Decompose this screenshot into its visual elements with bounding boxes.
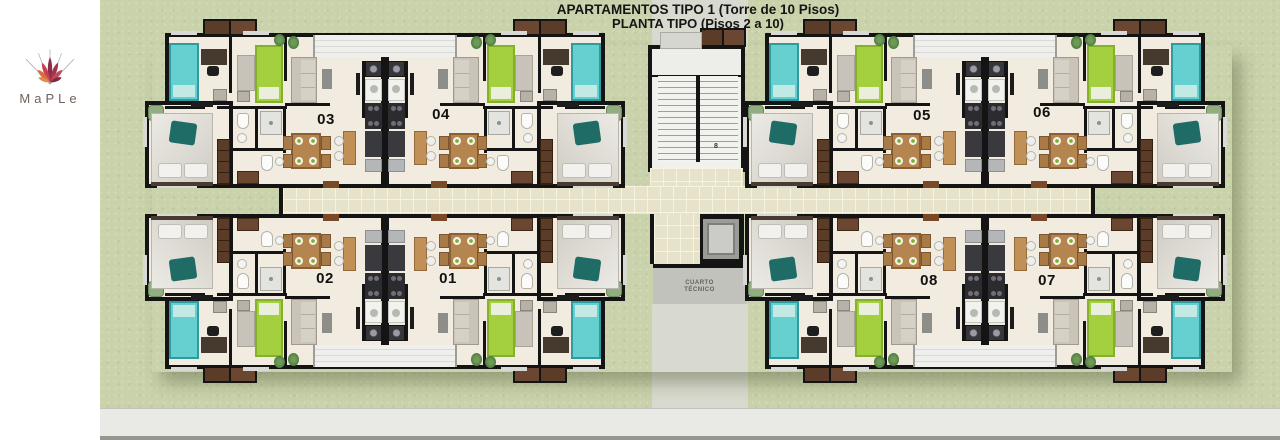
tv — [1010, 307, 1014, 329]
headboard — [151, 182, 213, 186]
pillow — [784, 163, 808, 178]
burner — [968, 291, 973, 296]
dining-chair — [321, 154, 331, 168]
plate — [295, 257, 303, 265]
burner — [391, 121, 396, 126]
plate — [295, 137, 303, 145]
tv — [956, 307, 960, 329]
sofa-cushions — [301, 302, 315, 342]
plant — [1071, 353, 1082, 366]
bed-green — [487, 299, 515, 357]
burner — [374, 106, 379, 111]
plate — [295, 237, 303, 245]
nightstand — [813, 89, 827, 101]
stool — [334, 256, 344, 266]
stove — [365, 273, 382, 299]
sofa-cushions — [455, 60, 469, 100]
dining-table — [1049, 133, 1079, 169]
wardrobe — [817, 139, 830, 185]
toilet — [261, 155, 273, 171]
plate — [309, 137, 317, 145]
stool — [426, 151, 436, 161]
hall-closet — [837, 218, 859, 231]
bed-teal — [769, 301, 799, 359]
nightstand — [837, 300, 850, 311]
shower — [860, 111, 882, 135]
burner — [997, 291, 1002, 296]
toilet — [521, 113, 533, 129]
dining-chair — [921, 252, 931, 266]
stool — [1026, 136, 1036, 146]
nightstand — [543, 89, 557, 101]
burner — [991, 121, 996, 126]
drain — [269, 121, 273, 125]
plate — [295, 157, 303, 165]
apartment-unit-02 — [145, 214, 385, 369]
plate — [895, 137, 903, 145]
hall-closet — [1111, 218, 1133, 231]
headboard — [1157, 216, 1219, 220]
kitchen-counter — [365, 131, 382, 157]
wardrobe — [540, 217, 553, 263]
kitchen-island — [1014, 237, 1027, 271]
pillow — [1091, 87, 1111, 99]
stair-flight-left — [658, 76, 696, 162]
washer — [988, 325, 1005, 341]
dining-chair — [1039, 234, 1049, 248]
balcony — [985, 345, 1057, 367]
plate — [909, 137, 917, 145]
entry-door — [923, 214, 939, 221]
kitchen-island — [943, 131, 956, 165]
apartment-number-07: 07 — [1027, 272, 1067, 289]
nightstand — [237, 91, 250, 102]
sofa — [453, 299, 479, 345]
burner — [974, 291, 979, 296]
tv — [1157, 295, 1179, 300]
fridge — [365, 159, 382, 172]
stool — [426, 256, 436, 266]
plate — [909, 237, 917, 245]
washer — [965, 61, 982, 77]
wall — [483, 106, 553, 109]
plate — [1053, 257, 1061, 265]
desk — [543, 337, 569, 353]
bathroom-sink — [837, 133, 847, 143]
dining-chair — [883, 136, 893, 150]
throw-blanket — [769, 120, 798, 145]
nightstand — [1143, 89, 1157, 101]
hall-closet — [237, 218, 259, 231]
kitchen-counter — [988, 245, 1005, 271]
nightstand — [213, 89, 227, 101]
throw-blanket — [169, 120, 198, 145]
dining-chair — [1077, 252, 1087, 266]
bed-green — [1087, 299, 1115, 357]
stair-level-label: 8 — [706, 143, 726, 150]
pillow — [1091, 303, 1111, 315]
nightstand — [237, 300, 250, 311]
burner — [974, 121, 979, 126]
burner — [997, 276, 1002, 281]
brand-name: MaPLe — [6, 91, 94, 106]
tv — [356, 73, 360, 95]
wall — [1005, 61, 1008, 118]
wall — [1083, 293, 1153, 296]
dining-chair — [439, 136, 449, 150]
dining-chair — [1039, 136, 1049, 150]
bed-master — [1157, 113, 1219, 183]
kitchen-counter — [388, 131, 405, 157]
balcony — [913, 35, 985, 57]
balcony — [913, 345, 985, 367]
plant — [485, 356, 496, 368]
wall — [817, 293, 887, 296]
throw-blanket — [1173, 120, 1202, 145]
dining-table — [449, 133, 479, 169]
hall-closet — [237, 171, 259, 184]
kitchen-sink-counter — [988, 79, 1005, 101]
pillow — [758, 224, 782, 239]
coffee-table — [1038, 69, 1048, 89]
tv — [557, 102, 579, 107]
pillow — [158, 163, 182, 178]
pillow — [184, 163, 208, 178]
pillow — [758, 163, 782, 178]
bathroom-sink — [523, 259, 533, 269]
toilet — [237, 113, 249, 129]
balcony — [385, 35, 457, 57]
tv — [356, 307, 360, 329]
headboard — [1157, 182, 1219, 186]
pillow — [1162, 163, 1186, 178]
nightstand — [1120, 300, 1133, 311]
stove — [388, 273, 405, 299]
bed-master — [751, 219, 813, 289]
burner — [991, 291, 996, 296]
nightstand — [1143, 301, 1157, 313]
bathroom-sink — [237, 259, 247, 269]
apartment-unit-08 — [745, 214, 985, 369]
toilet — [1097, 155, 1109, 171]
toilet — [497, 155, 509, 171]
desk — [1143, 49, 1169, 65]
plate — [467, 257, 475, 265]
stove — [365, 103, 382, 129]
desk — [801, 49, 827, 65]
burner — [374, 276, 379, 281]
tv — [956, 73, 960, 95]
bed-master — [151, 219, 213, 289]
wall — [405, 61, 408, 118]
stool — [334, 241, 344, 251]
dining-table — [1049, 233, 1079, 269]
plant — [471, 353, 482, 366]
plate — [467, 137, 475, 145]
dining-chair — [439, 252, 449, 266]
desk-chair — [551, 326, 563, 336]
roof-access-door-panels — [702, 30, 744, 45]
kitchen-sink-counter — [988, 301, 1005, 323]
drain — [1097, 277, 1101, 281]
fridge — [388, 230, 405, 243]
curb — [100, 436, 1280, 440]
window — [771, 31, 797, 35]
plant — [874, 34, 885, 46]
stove — [965, 273, 982, 299]
entry-door — [323, 214, 339, 221]
wardrobe — [217, 217, 230, 263]
kitchen-sink-counter — [965, 79, 982, 101]
dining-chair — [921, 136, 931, 150]
sofa-cushions — [1055, 60, 1069, 100]
desk — [543, 49, 569, 65]
kitchen-island — [943, 237, 956, 271]
sink-bowl — [970, 309, 978, 317]
wardrobe — [540, 139, 553, 185]
technical-room-label-line1: CUARTO — [685, 280, 714, 286]
dining-chair — [283, 252, 293, 266]
wall — [833, 251, 885, 254]
window — [843, 31, 869, 35]
plant — [288, 353, 299, 366]
tv — [191, 295, 213, 300]
fridge — [965, 159, 982, 172]
wardrobe — [217, 139, 230, 185]
wall — [229, 33, 232, 93]
window — [573, 31, 599, 35]
wall — [1083, 106, 1153, 109]
desk — [801, 337, 827, 353]
bed-master — [151, 113, 213, 183]
window — [843, 367, 869, 371]
dining-chair — [283, 154, 293, 168]
throw-blanket — [573, 256, 602, 281]
coffee-table — [922, 69, 932, 89]
wall — [255, 253, 258, 293]
window — [501, 31, 527, 35]
dining-table — [891, 233, 921, 269]
plate — [467, 157, 475, 165]
pillow — [773, 305, 795, 317]
apartment-number-01: 01 — [428, 270, 468, 287]
drain — [869, 277, 873, 281]
plate — [453, 157, 461, 165]
toilet — [497, 231, 509, 247]
window — [623, 255, 627, 285]
fridge — [965, 230, 982, 243]
kitchen-island — [343, 131, 356, 165]
plan-title: APARTAMENTOS TIPO 1 (Torre de 10 Pisos) … — [398, 2, 998, 31]
burner — [991, 106, 996, 111]
bed-green — [255, 45, 283, 103]
toilet — [1121, 113, 1133, 129]
desk-chair — [551, 66, 563, 76]
throw-blanket — [573, 120, 602, 145]
toilet — [237, 273, 249, 289]
coffee-table — [322, 313, 332, 333]
desk-chair — [207, 66, 219, 76]
nightstand — [543, 301, 557, 313]
site-plan: 8 CUARTO TÉCNICO — [0, 0, 1280, 440]
burner — [397, 276, 402, 281]
plant — [1085, 356, 1096, 368]
technical-room-label-line2: TÉCNICO — [684, 287, 715, 293]
shower — [488, 111, 510, 135]
wall — [833, 148, 885, 151]
washer — [365, 325, 382, 341]
pillow — [184, 224, 208, 239]
plate — [309, 257, 317, 265]
rug — [1115, 55, 1133, 91]
stair-landing — [652, 49, 741, 77]
sofa — [291, 57, 317, 103]
pillow — [562, 224, 586, 239]
dining-table — [449, 233, 479, 269]
sofa-cushions — [455, 302, 469, 342]
plan-title-line1: APARTAMENTOS TIPO 1 (Torre de 10 Pisos) — [398, 2, 998, 17]
desk-chair — [807, 326, 819, 336]
plate — [1067, 257, 1075, 265]
balcony — [985, 35, 1057, 57]
desk-chair — [807, 66, 819, 76]
window — [501, 367, 527, 371]
apartment-unit-01 — [385, 214, 625, 369]
pillow — [859, 303, 879, 315]
drain — [497, 277, 501, 281]
plate — [909, 157, 917, 165]
dining-chair — [921, 234, 931, 248]
headboard — [557, 182, 619, 186]
pillow — [1175, 85, 1197, 97]
stool — [1026, 241, 1036, 251]
plant — [888, 353, 899, 366]
plant — [1071, 36, 1082, 49]
bathroom-sink — [523, 133, 533, 143]
kitchen-sink-counter — [365, 301, 382, 323]
plant — [874, 356, 885, 368]
drain — [497, 121, 501, 125]
bed-teal — [571, 43, 601, 101]
window — [1101, 31, 1127, 35]
nightstand — [213, 301, 227, 313]
hall-closet — [1111, 171, 1133, 184]
bathroom-sink — [486, 157, 495, 166]
bathroom-sink — [237, 133, 247, 143]
core-entry-landing — [660, 32, 702, 49]
wall — [1112, 253, 1115, 293]
dining-chair — [439, 234, 449, 248]
wall — [538, 33, 541, 93]
bed-green — [1087, 45, 1115, 103]
sofa — [453, 57, 479, 103]
toilet — [861, 155, 873, 171]
window — [1101, 367, 1127, 371]
window — [1173, 367, 1199, 371]
sink-bowl — [992, 309, 1000, 317]
central-corridor — [279, 186, 1095, 214]
plate — [895, 157, 903, 165]
apartment-unit-07 — [985, 214, 1225, 369]
wall — [512, 253, 515, 293]
pillow — [158, 224, 182, 239]
plate — [309, 237, 317, 245]
window — [1173, 31, 1199, 35]
wall — [485, 148, 537, 151]
sink-bowl — [370, 309, 378, 317]
window — [143, 117, 147, 147]
bathroom-sink — [1086, 236, 1095, 245]
kitchen-island — [414, 131, 427, 165]
tv — [410, 307, 414, 329]
plate — [1053, 157, 1061, 165]
plate — [453, 237, 461, 245]
dining-chair — [321, 252, 331, 266]
burner — [974, 276, 979, 281]
shower — [1088, 267, 1110, 291]
shower — [260, 267, 282, 291]
window — [171, 367, 197, 371]
bed-teal — [169, 301, 199, 359]
wall — [1112, 109, 1115, 149]
window — [771, 367, 797, 371]
burner — [997, 106, 1002, 111]
burner — [391, 291, 396, 296]
dining-chair — [321, 136, 331, 150]
fridge — [988, 159, 1005, 172]
plate — [1053, 237, 1061, 245]
wall — [217, 293, 287, 296]
burner — [368, 121, 373, 126]
apartment-number-04: 04 — [421, 106, 461, 123]
dining-chair — [439, 154, 449, 168]
burner — [968, 121, 973, 126]
stool — [426, 241, 436, 251]
bed-teal — [571, 301, 601, 359]
pillow — [491, 303, 511, 315]
apartment-number-03: 03 — [306, 111, 346, 128]
window — [743, 255, 747, 285]
shower — [260, 111, 282, 135]
plate — [895, 237, 903, 245]
tv — [791, 102, 813, 107]
hall-closet — [511, 171, 533, 184]
plant — [888, 36, 899, 49]
wall — [1085, 148, 1137, 151]
stove — [988, 273, 1005, 299]
bathroom-sink — [1123, 259, 1133, 269]
wall — [855, 109, 858, 149]
dining-table — [291, 233, 321, 269]
brand-panel: MaPLe — [0, 0, 100, 440]
kitchen-counter — [388, 245, 405, 271]
rug — [237, 311, 255, 347]
sofa-cushions — [301, 60, 315, 100]
sink-bowl — [392, 309, 400, 317]
core-lobby-tiles — [650, 168, 743, 188]
headboard — [151, 216, 213, 220]
pillow — [784, 224, 808, 239]
elevator-lobby-tiles — [650, 212, 700, 264]
rug — [515, 311, 533, 347]
sofa-cushions — [1055, 302, 1069, 342]
sink-bowl — [392, 85, 400, 93]
burner — [374, 291, 379, 296]
kitchen-counter — [988, 131, 1005, 157]
bed-green — [487, 45, 515, 103]
burner — [968, 106, 973, 111]
wall — [1085, 251, 1137, 254]
